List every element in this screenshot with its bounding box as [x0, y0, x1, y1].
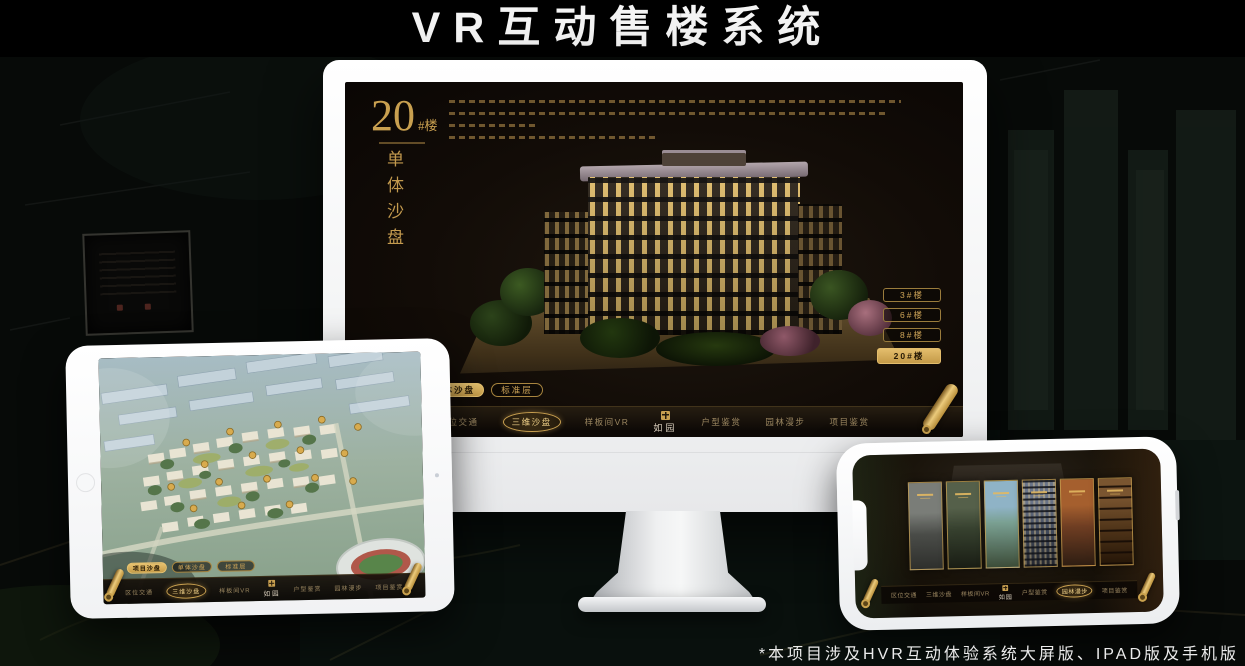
floor-button-3[interactable]: 3#楼: [883, 288, 941, 302]
nav-item-project-view[interactable]: 项目鉴赏: [1102, 585, 1128, 595]
phone-side-button[interactable]: [1175, 490, 1180, 520]
floor-button-group: 3#楼 6#楼 8#楼 20#楼: [877, 288, 941, 364]
tablet-frame: 项目沙盘 单体沙盘 标准层 区位交通 三维沙盘 样板间VR 如园 户型鉴赏 园林…: [65, 338, 455, 619]
floor-button-8[interactable]: 8#楼: [883, 328, 941, 342]
phone-screen: 区位交通 三维沙盘 样板间VR 如园 户型鉴赏 园林漫步 项目鉴赏: [852, 449, 1164, 619]
description-line: [449, 124, 539, 127]
unit-number: 20: [371, 91, 415, 140]
subtab-standard-floor[interactable]: 标准层: [217, 560, 255, 572]
brand-seal-icon: [1003, 585, 1009, 591]
monitor-stand: [592, 511, 754, 599]
unit-title-block: 20#楼 单体沙盘: [371, 94, 438, 260]
description-line: [449, 112, 887, 115]
phone-mockup: 区位交通 三维沙盘 样板间VR 如园 户型鉴赏 园林漫步 项目鉴赏: [836, 436, 1180, 631]
nav-item-3d-sandbox[interactable]: 三维沙盘: [926, 589, 952, 599]
tablet-screen: 项目沙盘 单体沙盘 标准层 区位交通 三维沙盘 样板间VR 如园 户型鉴赏 园林…: [98, 352, 425, 605]
phone-main-nav: 区位交通 三维沙盘 样板间VR 如园 户型鉴赏 园林漫步 项目鉴赏: [881, 580, 1137, 604]
nav-item-project-view[interactable]: 项目鉴赏: [829, 416, 869, 428]
unit-suffix: #楼: [418, 118, 438, 133]
nav-item-location-traffic[interactable]: 区位交通: [125, 587, 153, 597]
page: VR互动售楼系统 20#楼 单体沙盘: [0, 0, 1245, 666]
description-line: [449, 100, 901, 103]
brand-logo-text: 如园: [263, 588, 280, 598]
scroll-decoration-icon[interactable]: [1139, 572, 1156, 599]
brand-logo: 如园: [263, 580, 280, 598]
tablet-main-nav: 区位交通 三维沙盘 样板间VR 如园 户型鉴赏 园林漫步 项目鉴赏: [103, 573, 425, 605]
building-facade: [588, 177, 800, 335]
tree: [760, 326, 820, 356]
floor-button-20[interactable]: 20#楼: [877, 348, 941, 364]
brand-logo: 如园: [999, 584, 1013, 600]
nav-item-model-room-vr[interactable]: 样板间VR: [219, 585, 251, 595]
scene-card-gallery: [908, 477, 1134, 570]
brand-logo-text: 如园: [999, 591, 1013, 600]
nav-item-garden-walk[interactable]: 园林漫步: [334, 582, 362, 592]
building-penthouse: [662, 153, 746, 166]
scene-card-landscape[interactable]: [984, 480, 1020, 569]
nav-item-model-room-vr[interactable]: 样板间VR: [961, 588, 990, 598]
monitor-base: [578, 597, 766, 612]
brand-logo: 如园: [653, 411, 677, 434]
description-line: [449, 136, 657, 139]
nav-item-model-room-vr[interactable]: 样板间VR: [585, 416, 630, 428]
scene-card-autumn[interactable]: [1060, 478, 1096, 567]
nav-item-floorplan-view[interactable]: 户型鉴赏: [701, 416, 741, 428]
footnote: *本项目涉及HVR互动体验系统大屏版、IPAD版及手机版: [759, 640, 1239, 664]
scene-card-courtyard[interactable]: [908, 481, 944, 570]
nav-item-floorplan-view[interactable]: 户型鉴赏: [1022, 587, 1048, 597]
brand-seal-icon: [268, 580, 275, 587]
nav-item-garden-walk[interactable]: 园林漫步: [1057, 584, 1093, 598]
scene-card-building[interactable]: [1022, 479, 1058, 568]
tree: [656, 332, 776, 366]
phone-notch: [852, 500, 868, 570]
building-model[interactable]: [460, 150, 900, 382]
nav-item-3d-sandbox[interactable]: 三维沙盘: [503, 412, 561, 432]
subtab-single-sandbox[interactable]: 单体沙盘: [172, 561, 212, 573]
description-text-lines: [449, 100, 901, 148]
brand-logo-text: 如园: [653, 421, 677, 434]
subtab-standard-floor[interactable]: 标准层: [491, 383, 543, 397]
unit-vertical-title: 单体沙盘: [381, 150, 406, 260]
scene-card-interior[interactable]: [1098, 477, 1134, 566]
phone-frame: 区位交通 三维沙盘 样板间VR 如园 户型鉴赏 园林漫步 项目鉴赏: [836, 436, 1180, 631]
tablet-mockup: 项目沙盘 单体沙盘 标准层 区位交通 三维沙盘 样板间VR 如园 户型鉴赏 园林…: [65, 338, 455, 619]
nav-item-floorplan-view[interactable]: 户型鉴赏: [293, 583, 321, 593]
subtab-project-sandbox[interactable]: 项目沙盘: [127, 562, 167, 574]
nav-item-location-traffic[interactable]: 区位交通: [891, 590, 917, 600]
nav-item-project-view[interactable]: 项目鉴赏: [375, 582, 403, 592]
unit-caption-line: [379, 142, 425, 144]
nav-item-garden-walk[interactable]: 园林漫步: [765, 416, 805, 428]
tablet-camera-icon: [435, 473, 439, 477]
building-left-wing: [544, 212, 590, 334]
scroll-decoration-icon[interactable]: [862, 578, 879, 605]
tablet-home-button[interactable]: [76, 472, 95, 491]
nav-item-3d-sandbox[interactable]: 三维沙盘: [166, 583, 206, 599]
brand-seal-icon: [661, 411, 670, 420]
tree: [580, 318, 660, 358]
scene-card-garden[interactable]: [946, 481, 982, 570]
floor-button-6[interactable]: 6#楼: [883, 308, 941, 322]
